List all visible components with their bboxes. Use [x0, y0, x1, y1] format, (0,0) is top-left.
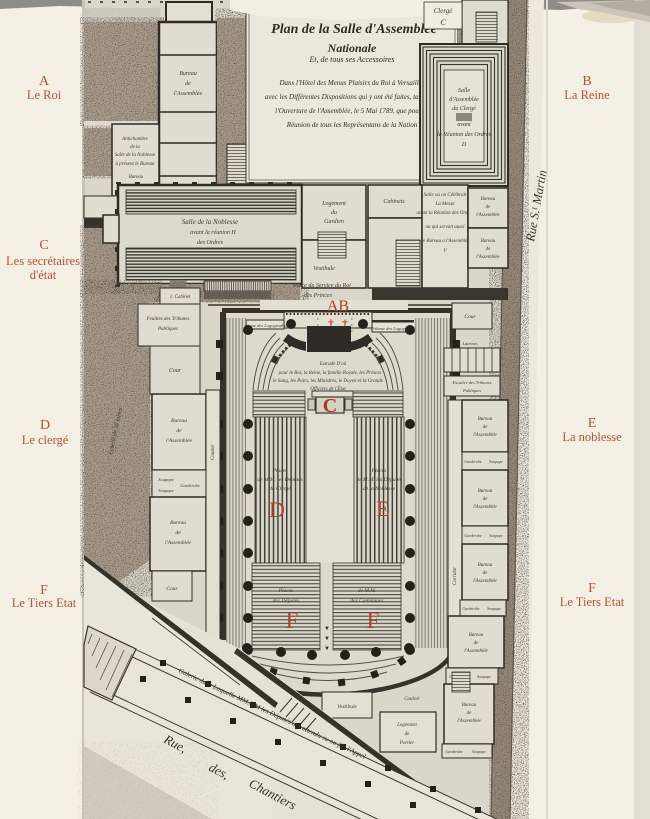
svg-text:Logement: Logement	[321, 201, 346, 207]
svg-text:Cour: Cour	[166, 586, 178, 592]
svg-text:Soupape: Soupape	[472, 749, 486, 754]
svg-text:d'Assemblée: d'Assemblée	[449, 97, 479, 103]
svg-text:B: B	[582, 74, 591, 89]
svg-text:pour le Roi, la Reine, la fami: pour le Roi, la Reine, la famille Royale…	[278, 371, 382, 376]
svg-text:Cour: Cour	[464, 314, 476, 320]
svg-text:Salle de la Noblesse: Salle de la Noblesse	[115, 153, 156, 158]
svg-text:▼: ▼	[324, 636, 330, 642]
svg-text:de: de	[483, 571, 489, 576]
svg-text:Garderobe: Garderobe	[464, 459, 481, 464]
svg-text:Garderobe: Garderobe	[464, 533, 481, 538]
svg-text:de: de	[467, 711, 473, 716]
svg-text:Officiers de l'État: Officiers de l'État	[310, 386, 346, 392]
svg-text:Bureau: Bureau	[478, 563, 493, 568]
svg-text:l'Assemblée: l'Assemblée	[166, 438, 192, 444]
svg-text:Gardien: Gardien	[324, 219, 344, 225]
svg-text:la Réunion des Ordres: la Réunion des Ordres	[437, 132, 491, 138]
svg-text:La Reine: La Reine	[564, 88, 610, 102]
svg-text:Bureau: Bureau	[170, 520, 186, 526]
svg-text:Corridor: Corridor	[453, 567, 458, 585]
svg-text:Salle: Salle	[458, 88, 470, 94]
svg-text:E: E	[588, 416, 597, 431]
svg-text:c: c	[351, 322, 353, 327]
svg-text:Dans l'Hôtel des Menus Plaisir: Dans l'Hôtel des Menus Plaisirs du Roi à…	[279, 79, 425, 87]
svg-text:l'Assemblée: l'Assemblée	[476, 213, 500, 218]
svg-text:Le Tiers Etat: Le Tiers Etat	[12, 596, 77, 610]
svg-text:Réunion de tous les Représenta: Réunion de tous les Représentans de la N…	[286, 121, 418, 129]
svg-text:1. Cabinet: 1. Cabinet	[170, 295, 191, 300]
svg-text:ou qui servait aussi: ou qui servait aussi	[425, 225, 465, 230]
svg-text:Feuilles des Tribunes: Feuilles des Tribunes	[146, 317, 190, 322]
svg-text:de: de	[486, 247, 492, 252]
svg-text:de M.M. les Députés: de M.M. les Députés	[356, 477, 401, 483]
svg-text:Antichambre: Antichambre	[121, 137, 148, 142]
svg-text:Cour: Cour	[169, 368, 182, 374]
svg-text:Escalier des Tribunes: Escalier des Tribunes	[452, 380, 492, 385]
svg-text:l'Assemblée: l'Assemblée	[457, 719, 481, 724]
svg-text:Garderobe: Garderobe	[180, 483, 199, 488]
svg-text:l'Assemblée: l'Assemblée	[165, 540, 191, 546]
svg-text:l'Assemblée: l'Assemblée	[476, 255, 500, 260]
svg-text:l'Assemblée: l'Assemblée	[473, 433, 497, 438]
svg-text:Soupape: Soupape	[489, 459, 503, 464]
svg-text:Salle ou on Célébrait: Salle ou on Célébrait	[424, 193, 467, 198]
svg-text:Logement: Logement	[396, 723, 417, 728]
svg-text:de: de	[483, 497, 489, 502]
svg-text:Bureau: Bureau	[478, 489, 493, 494]
svg-text:le Sang, les Pairs, les Minist: le Sang, les Pairs, les Ministres, le Do…	[273, 379, 384, 384]
svg-text:de: de	[176, 428, 182, 434]
svg-text:l'Assemblée: l'Assemblée	[174, 91, 203, 97]
svg-text:La Messe: La Messe	[434, 202, 455, 207]
svg-text:Clergé: Clergé	[434, 7, 454, 15]
svg-text:l'Assemblée: l'Assemblée	[464, 649, 488, 654]
svg-text:c: c	[351, 328, 353, 333]
svg-text:Bureau: Bureau	[171, 418, 187, 424]
svg-text:Latrines: Latrines	[461, 341, 477, 346]
svg-text:de M.M.: de M.M.	[358, 588, 376, 594]
svg-text:Le clergé: Le clergé	[22, 433, 69, 447]
svg-text:Le Tiers Etat: Le Tiers Etat	[560, 595, 625, 609]
svg-text:Vestibule: Vestibule	[313, 266, 335, 272]
svg-text:Place du Service du Roi: Place du Service du Roi	[292, 283, 351, 289]
svg-text:Places: Places	[371, 468, 387, 474]
svg-text:de la: de la	[130, 145, 140, 150]
svg-text:Portier: Portier	[399, 741, 414, 746]
svg-text:du Clergé: du Clergé	[269, 486, 291, 492]
svg-text:c: c	[351, 316, 353, 321]
svg-text:Soupape: Soupape	[158, 488, 174, 493]
svg-text:Bureau: Bureau	[481, 239, 496, 244]
svg-text:Bureau: Bureau	[179, 71, 196, 77]
svg-text:C: C	[440, 18, 446, 27]
svg-text:Garderobe: Garderobe	[445, 749, 462, 754]
svg-text:Places: Places	[272, 468, 288, 474]
svg-text:La noblesse: La noblesse	[562, 430, 622, 444]
svg-text:C: C	[39, 238, 48, 253]
svg-text:Cabinets: Cabinets	[383, 199, 405, 205]
svg-text:l'Assemblée: l'Assemblée	[473, 505, 497, 510]
svg-text:Bureau: Bureau	[129, 175, 144, 180]
svg-text:D: D	[461, 142, 467, 148]
svg-text:Vestibule: Vestibule	[337, 704, 357, 710]
svg-text:Soupape: Soupape	[477, 674, 491, 679]
svg-text:A: A	[39, 74, 50, 89]
svg-text:Plan de la Salle d'Assemblée: Plan de la Salle d'Assemblée	[271, 22, 437, 37]
svg-text:Le Roi: Le Roi	[27, 88, 62, 102]
svg-text:Publiques: Publiques	[462, 388, 481, 393]
svg-text:Places: Places	[278, 588, 294, 594]
svg-text:Bureau: Bureau	[478, 417, 493, 422]
svg-text:Salle de la Noblesse: Salle de la Noblesse	[182, 218, 239, 226]
svg-text:l'Ouverture de l'Assemblée, le: l'Ouverture de l'Assemblée, le 5 Mai 178…	[275, 107, 429, 115]
svg-text:▼: ▼	[324, 646, 330, 652]
svg-text:des Ordres: des Ordres	[197, 240, 224, 246]
svg-text:Couloir: Couloir	[404, 697, 420, 702]
svg-text:de: de	[405, 732, 411, 737]
svg-text:avant la Réunion des Ordres: avant la Réunion des Ordres	[416, 211, 473, 216]
svg-text:avant la réunion H: avant la réunion H	[190, 230, 236, 236]
svg-text:de: de	[185, 81, 191, 87]
svg-text:Bureau: Bureau	[462, 703, 477, 708]
svg-text:Bureau: Bureau	[481, 197, 496, 202]
svg-text:Soupape: Soupape	[489, 533, 503, 538]
svg-text:du Clergé: du Clergé	[452, 106, 476, 112]
svg-text:du: du	[331, 210, 337, 216]
svg-text:avant: avant	[457, 122, 471, 128]
svg-text:de: de	[486, 205, 492, 210]
svg-text:l'Assemblée: l'Assemblée	[473, 579, 497, 584]
svg-text:F: F	[588, 581, 596, 596]
svg-text:de: de	[474, 641, 480, 646]
svg-text:de M.M. les Députés: de M.M. les Députés	[257, 477, 302, 483]
svg-text:D: D	[269, 497, 285, 522]
svg-text:F: F	[286, 608, 299, 633]
svg-text:de Bureau a l'Assemblée: de Bureau a l'Assemblée	[420, 239, 470, 244]
svg-text:des Communes: des Communes	[350, 598, 383, 604]
svg-text:c: c	[317, 316, 319, 321]
svg-text:Nationale: Nationale	[327, 41, 377, 55]
svg-text:Soupape: Soupape	[158, 477, 174, 482]
svg-text:C: C	[323, 395, 337, 417]
svg-text:Garderobe: Garderobe	[462, 606, 479, 611]
svg-text:d'état: d'état	[30, 268, 57, 282]
svg-text:Les secrétaires: Les secrétaires	[6, 254, 80, 268]
svg-text:Et, de tous ses Accessoires: Et, de tous ses Accessoires	[308, 55, 394, 64]
svg-text:Couloir: Couloir	[211, 444, 216, 460]
svg-text:E: E	[376, 496, 389, 521]
svg-text:▼: ▼	[324, 626, 330, 632]
svg-text:D: D	[40, 418, 50, 433]
svg-text:des Députés: des Députés	[273, 598, 300, 604]
svg-text:de la Noblesse: de la Noblesse	[363, 486, 396, 492]
svg-text:avec les Différentes Dispositi: avec les Différentes Dispositions qui y …	[265, 93, 439, 101]
svg-text:Soupape: Soupape	[487, 606, 501, 611]
svg-text:Publiques: Publiques	[157, 327, 178, 332]
svg-text:F: F	[367, 608, 380, 633]
svg-text:de: de	[175, 530, 181, 536]
svg-text:de: de	[483, 425, 489, 430]
svg-text:Estrade D'où: Estrade D'où	[319, 362, 347, 367]
svg-text:à présent le Bureau: à présent le Bureau	[115, 162, 155, 167]
svg-text:Bureau: Bureau	[469, 633, 484, 638]
